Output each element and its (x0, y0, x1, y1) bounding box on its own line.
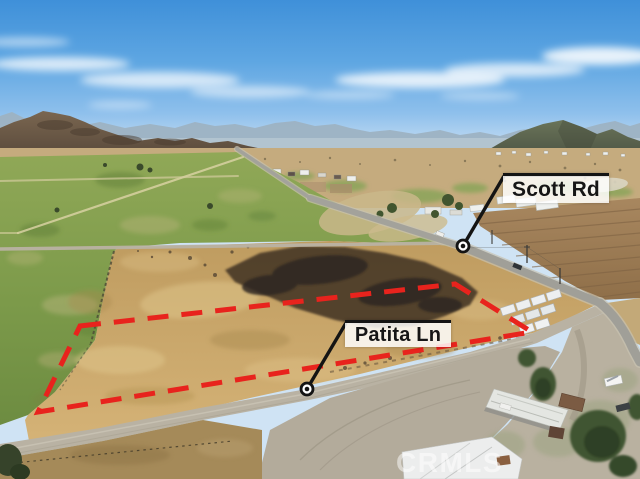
location-ring-icon-scott (457, 240, 469, 252)
road-label-patita-ln: Patita Ln (345, 320, 451, 347)
aerial-photo: Scott Rd Patita Ln CRMLS (0, 0, 640, 479)
road-label-scott-rd: Scott Rd (503, 173, 609, 203)
crmls-watermark: CRMLS (396, 447, 503, 479)
location-ring-icon-patita (301, 383, 313, 395)
